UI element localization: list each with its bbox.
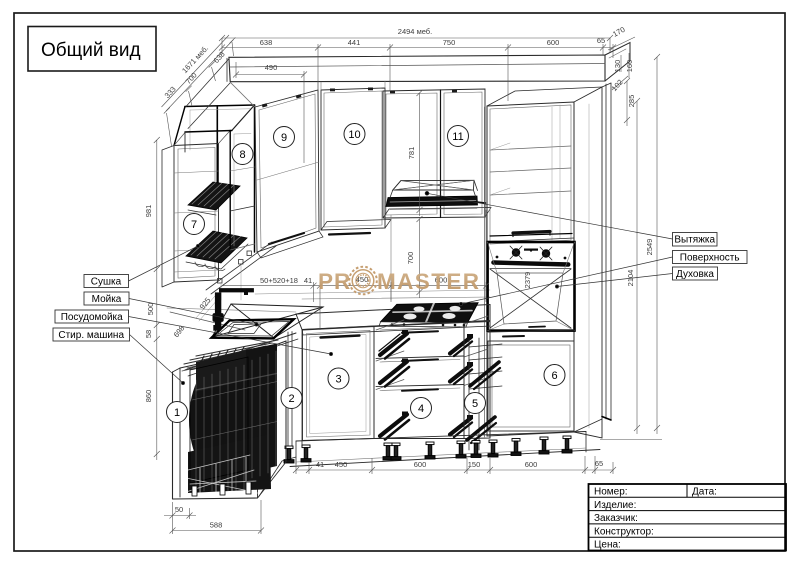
svg-text:Вытяжка: Вытяжка <box>674 235 715 246</box>
svg-text:2549: 2549 <box>645 239 654 256</box>
svg-text:65: 65 <box>597 36 605 45</box>
svg-text:41: 41 <box>316 460 324 469</box>
svg-text:450: 450 <box>335 460 348 469</box>
svg-text:3: 3 <box>335 374 341 386</box>
svg-text:Посудомойка: Посудомойка <box>61 312 123 323</box>
svg-text:600: 600 <box>414 460 427 469</box>
svg-text:700: 700 <box>406 252 415 265</box>
svg-text:781: 781 <box>407 147 416 160</box>
svg-text:981: 981 <box>144 205 153 218</box>
svg-text:7: 7 <box>191 219 197 231</box>
svg-text:860: 860 <box>144 390 153 403</box>
svg-text:2379: 2379 <box>523 272 532 289</box>
svg-text:Духовка: Духовка <box>676 269 714 280</box>
svg-text:PR: PR <box>318 269 351 294</box>
svg-text:41: 41 <box>304 276 312 285</box>
svg-text:Цена:: Цена: <box>594 540 621 551</box>
svg-text:2494 меб.: 2494 меб. <box>398 27 432 36</box>
svg-text:750: 750 <box>443 38 456 47</box>
svg-text:5: 5 <box>472 398 478 410</box>
svg-text:Мойка: Мойка <box>92 294 122 305</box>
svg-text:600: 600 <box>525 460 538 469</box>
svg-text:Дата:: Дата: <box>692 487 717 498</box>
svg-text:8: 8 <box>239 149 245 161</box>
svg-text:285: 285 <box>627 95 636 108</box>
svg-text:150: 150 <box>468 460 481 469</box>
svg-text:Номер:: Номер: <box>594 487 628 498</box>
svg-text:4: 4 <box>418 403 424 415</box>
svg-text:2: 2 <box>288 393 294 405</box>
svg-text:Стир. машина: Стир. машина <box>58 330 124 341</box>
svg-text:65: 65 <box>595 459 603 468</box>
svg-text:10: 10 <box>348 129 360 141</box>
svg-text:1: 1 <box>174 407 180 419</box>
svg-text:Изделие:: Изделие: <box>594 500 636 511</box>
svg-text:11: 11 <box>452 131 463 143</box>
svg-text:130: 130 <box>613 60 622 73</box>
svg-text:500: 500 <box>146 303 155 316</box>
svg-text:Сушка: Сушка <box>91 277 122 288</box>
svg-text:50+520+18: 50+520+18 <box>260 276 298 285</box>
svg-text:Конструктор:: Конструктор: <box>594 526 654 537</box>
svg-text:160: 160 <box>625 60 634 73</box>
svg-text:MASTER: MASTER <box>377 269 480 294</box>
svg-text:6: 6 <box>551 370 557 382</box>
svg-text:588: 588 <box>210 521 223 530</box>
svg-text:Заказчик:: Заказчик: <box>594 513 638 524</box>
svg-text:441: 441 <box>348 38 361 47</box>
svg-text:Поверхность: Поверхность <box>680 253 740 264</box>
svg-text:9: 9 <box>281 132 287 144</box>
svg-text:58: 58 <box>144 330 153 338</box>
svg-text:Общий вид: Общий вид <box>41 40 141 61</box>
svg-text:50: 50 <box>175 505 183 514</box>
svg-text:490: 490 <box>265 63 278 72</box>
svg-text:600: 600 <box>547 38 560 47</box>
svg-text:638: 638 <box>260 38 273 47</box>
